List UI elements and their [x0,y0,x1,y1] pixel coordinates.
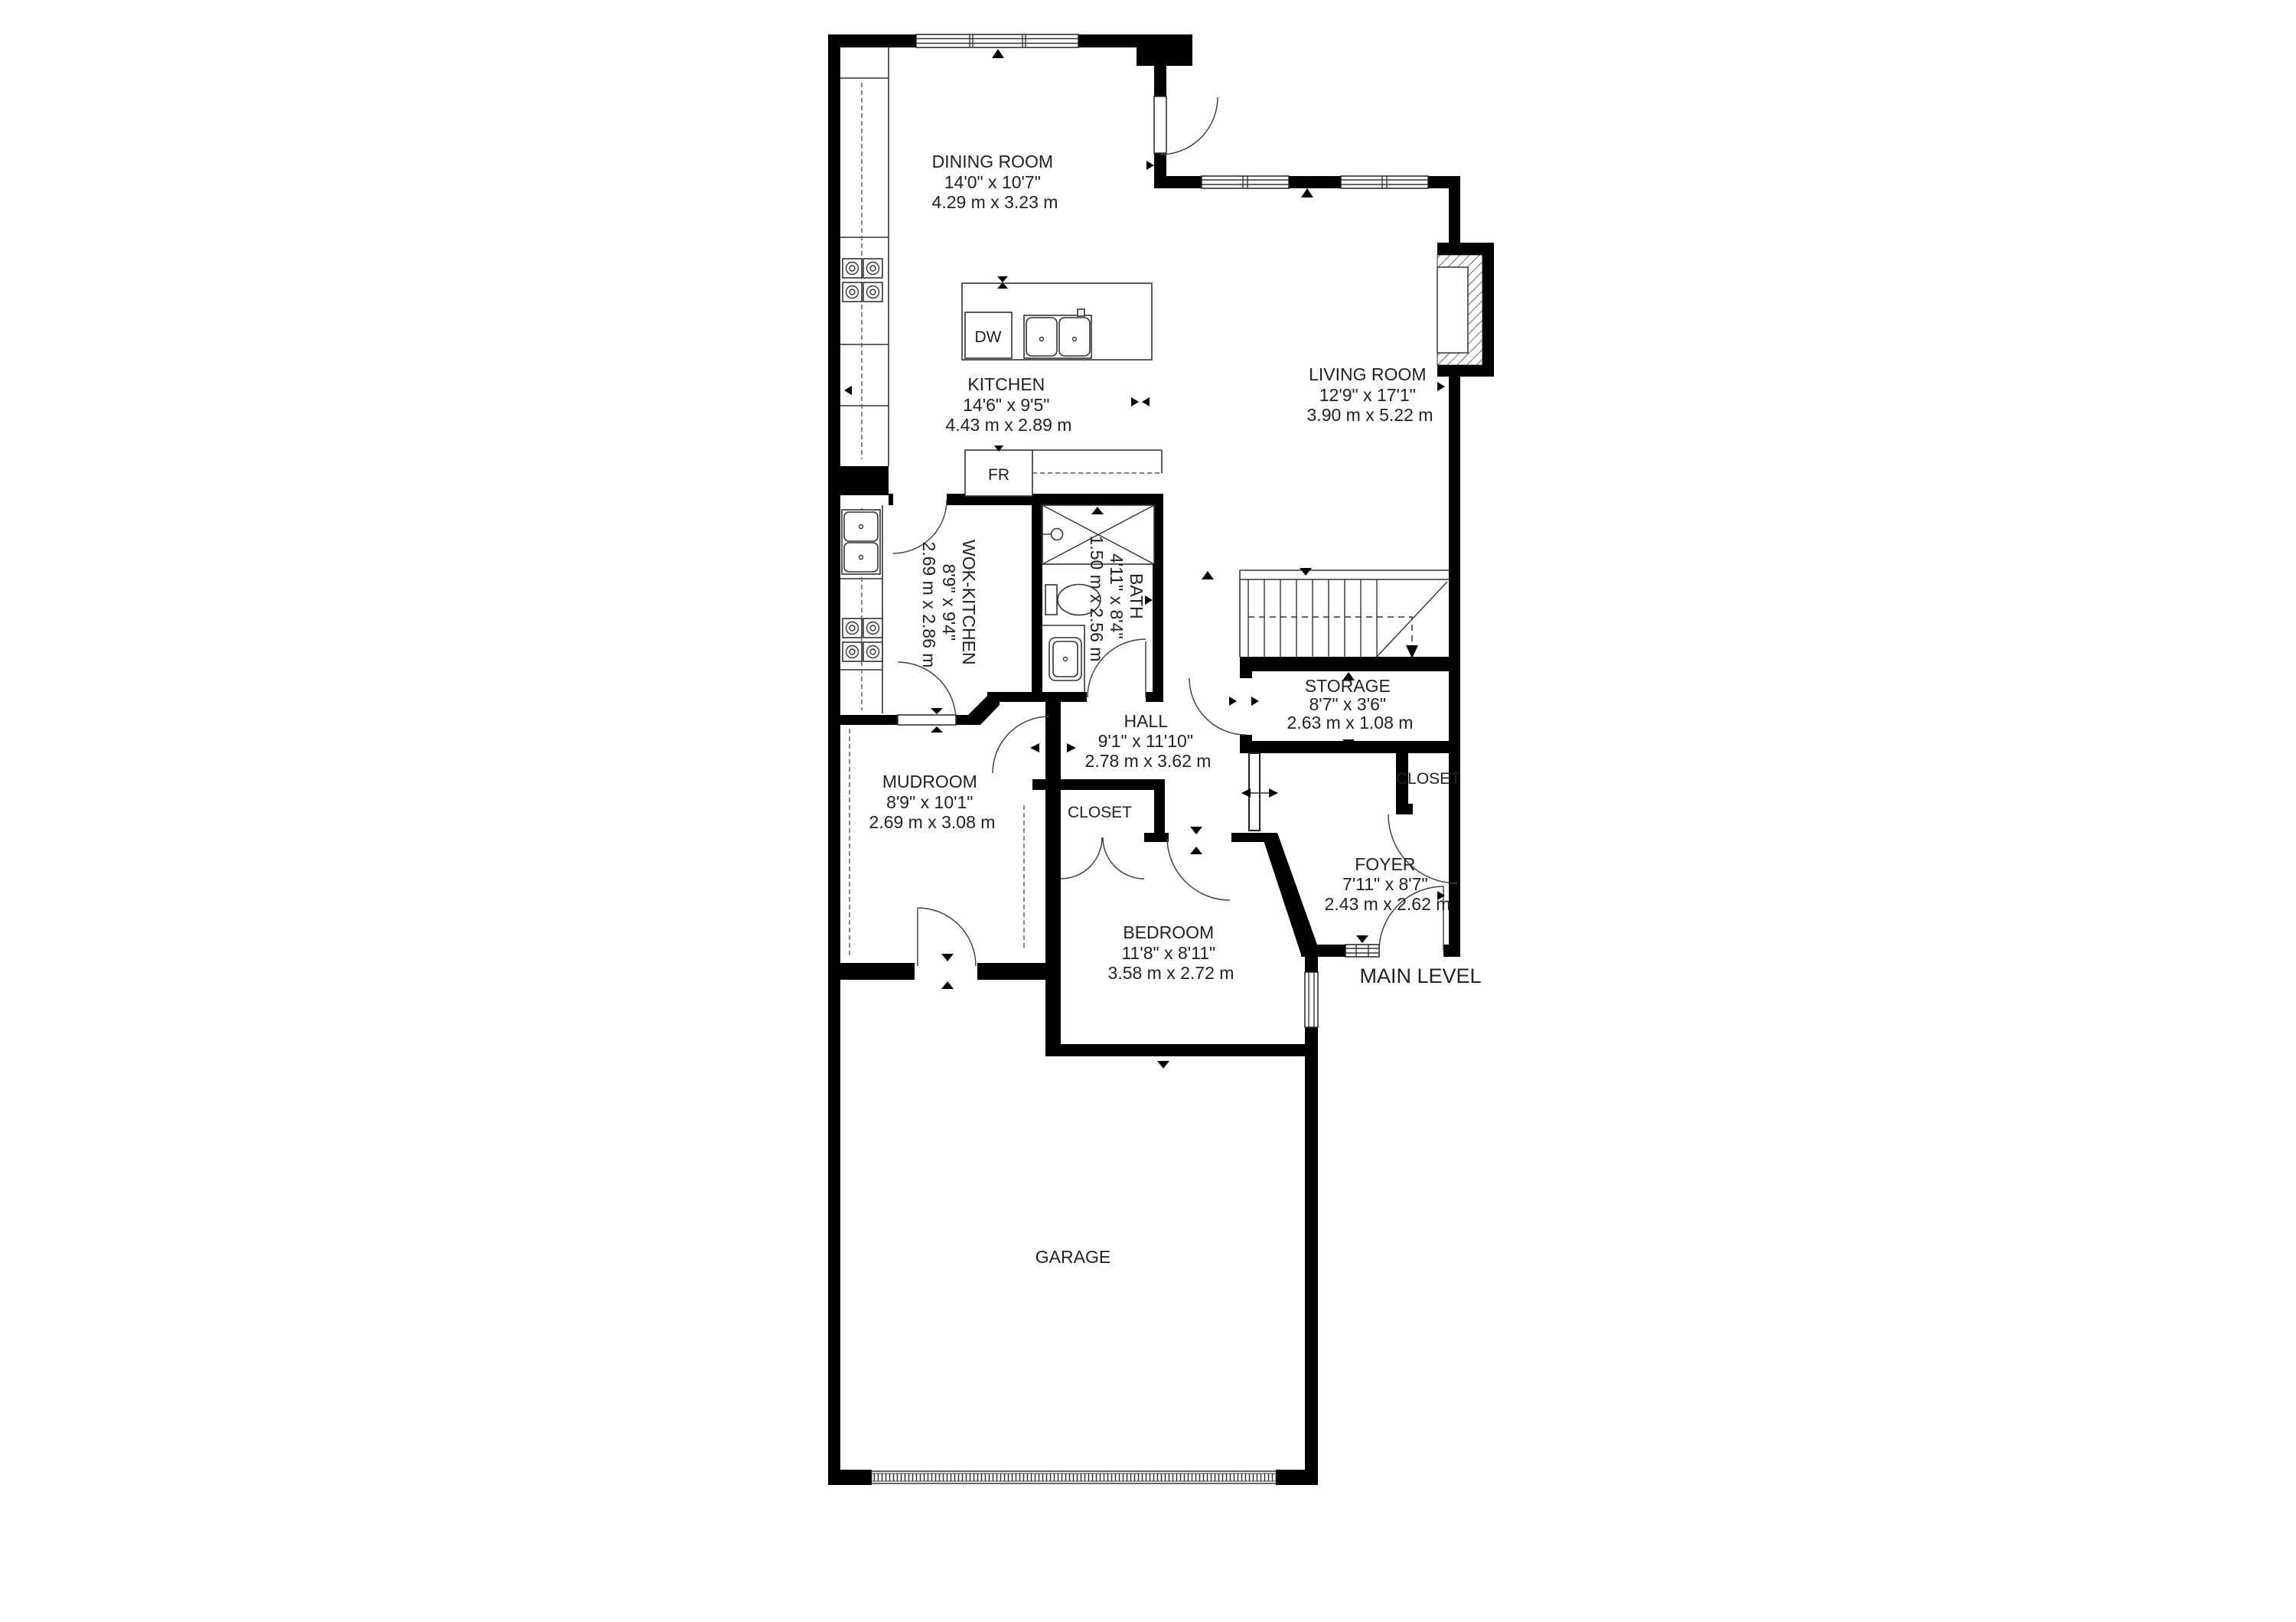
shower-head-icon [1052,529,1063,540]
dining-door-leaf [1154,96,1166,153]
living-room-label: LIVING ROOM 12'9" x 17'1" 3.90 m x 5.22 … [1307,364,1433,425]
page-background [0,0,2296,1622]
bedroom-label: BEDROOM 11'8" x 8'11" 3.58 m x 2.72 m [1108,922,1234,983]
level-label: MAIN LEVEL [1359,964,1481,987]
kitchen-island [962,276,1152,360]
entry-sidelite [1345,945,1379,957]
dishwasher-label: DW [975,328,1002,346]
floor-plan-canvas: DINING ROOM 14'0" x 10'7" 4.29 m x 3.23 … [0,0,2296,1622]
mudroom-label: MUDROOM 8'9" x 10'1" 2.69 m x 3.08 m [869,772,996,832]
fridge-label: FR [988,466,1009,484]
living-window-left [1202,176,1289,188]
living-window-right [1341,176,1428,188]
fireplace [1437,243,1494,377]
wok-mudroom-door-leaf [898,715,956,725]
half-wall [1249,753,1260,831]
dining-room-label: DINING ROOM 14'0" x 10'7" 4.29 m x 3.23 … [932,152,1058,212]
toilet-tank [1045,585,1057,615]
faucet-icon [1078,309,1084,316]
closet-hall-label: CLOSET [1068,804,1132,821]
garage-label: GARAGE [1035,1247,1110,1267]
closet-foyer-label: CLOSET [1396,770,1460,788]
garage-side-window [1305,972,1318,1027]
dining-window [916,34,1078,47]
floor-plan-page: DINING ROOM 14'0" x 10'7" 4.29 m x 3.23 … [0,0,2296,1622]
